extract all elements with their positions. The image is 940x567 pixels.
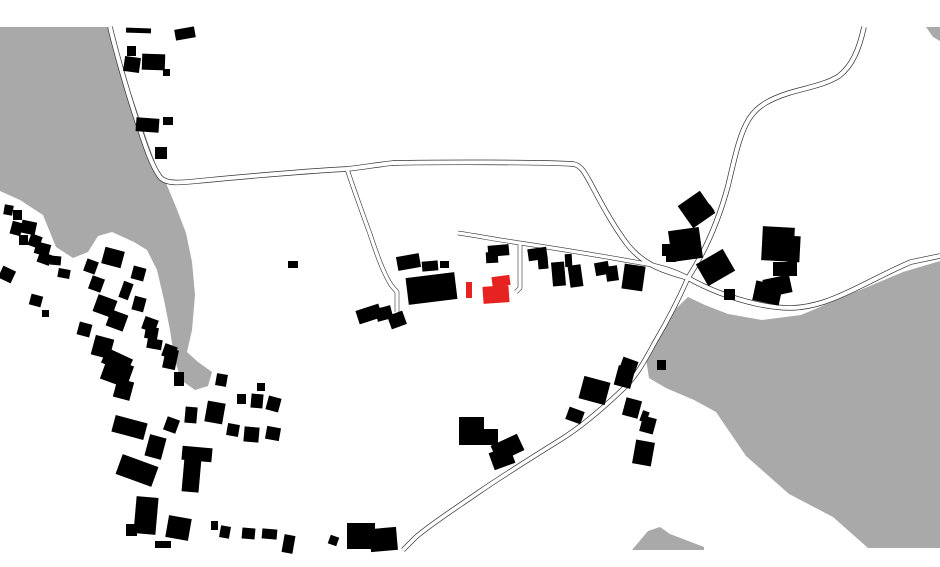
building-footprint (242, 527, 256, 539)
building-footprint (126, 28, 151, 34)
building-footprint (182, 457, 202, 492)
building-footprint (621, 264, 645, 292)
building-footprint (163, 117, 173, 125)
building-footprint (131, 296, 146, 313)
building-footprint (88, 275, 105, 293)
building-footprint (13, 210, 22, 220)
gray-area-lake-east (646, 261, 940, 548)
building-footprint (155, 147, 167, 159)
building-footprint (622, 397, 642, 419)
road-northwest-main (110, 27, 688, 278)
map-canvas (0, 0, 940, 567)
highlighted-building-layer (466, 275, 511, 304)
building-footprint (20, 220, 37, 236)
building-footprint (19, 235, 28, 245)
building-footprint (127, 46, 136, 56)
building-footprint (3, 204, 14, 215)
building-footprint (118, 281, 133, 300)
building-footprint (396, 253, 421, 271)
building-footprint (165, 515, 191, 541)
building-footprint (605, 265, 619, 282)
building-footprint (0, 266, 16, 284)
building-footprint (155, 541, 171, 548)
building-footprint (136, 117, 160, 133)
building-footprint (257, 383, 265, 391)
building-footprint (215, 373, 228, 387)
building-footprint (551, 261, 566, 286)
building-footprint (262, 528, 278, 539)
building-footprint (265, 426, 281, 441)
building-footprint (144, 434, 166, 460)
building-footprint (406, 272, 458, 305)
building-footprint (537, 256, 548, 270)
building-footprint (29, 294, 43, 308)
building-footprint (163, 69, 170, 76)
building-footprint (116, 454, 159, 487)
building-footprint (50, 256, 62, 266)
gray-area-bottom-mound (632, 527, 704, 550)
building-footprint (133, 496, 158, 535)
building-footprint (123, 56, 141, 73)
gray-area-topright-wedge (926, 27, 940, 41)
road-branch-south (347, 169, 397, 312)
building-footprint (163, 416, 180, 434)
highlighted-building (466, 282, 472, 298)
building-footprint (101, 247, 125, 269)
building-footprint (440, 261, 449, 268)
building-footprint (243, 426, 259, 442)
building-footprint (288, 261, 298, 268)
building-footprint (42, 310, 49, 317)
building-footprint (666, 254, 676, 262)
building-footprint (632, 440, 655, 467)
site-plan-svg (0, 0, 940, 567)
building-footprint (211, 521, 218, 530)
building-footprint (57, 268, 70, 279)
building-footprint (282, 534, 296, 554)
building-footprint (146, 338, 163, 350)
building-footprint (422, 260, 439, 271)
building-footprint (614, 365, 636, 389)
building-footprint (184, 407, 197, 424)
building-footprint (204, 401, 225, 425)
road-northwest-main-casing (110, 27, 688, 278)
building-footprint (77, 322, 93, 338)
building-footprint (174, 26, 196, 40)
building-footprint (237, 394, 246, 404)
building-footprint (131, 266, 147, 282)
building-footprint (142, 54, 166, 71)
building-footprint (174, 372, 184, 386)
building-footprint (219, 525, 231, 539)
building-footprint (144, 326, 159, 340)
building-footprint (657, 360, 666, 370)
building-footprint (328, 535, 340, 547)
building-footprint (250, 394, 263, 409)
building-footprint (785, 236, 800, 263)
building-footprint (788, 261, 797, 276)
building-footprint (226, 423, 240, 437)
building-footprint (459, 429, 498, 445)
building-footprint (578, 376, 610, 405)
building-footprint (486, 252, 499, 264)
building-footprint (265, 396, 281, 413)
building-footprint (724, 289, 735, 300)
building-footprint (565, 254, 573, 267)
building-footprint (369, 527, 398, 552)
building-footprint (83, 258, 99, 274)
highlighted-building (482, 285, 509, 304)
gray-area-northwest (0, 27, 212, 390)
building-footprint (568, 264, 584, 288)
building-footprint (111, 415, 147, 440)
building-footprint (126, 524, 137, 536)
